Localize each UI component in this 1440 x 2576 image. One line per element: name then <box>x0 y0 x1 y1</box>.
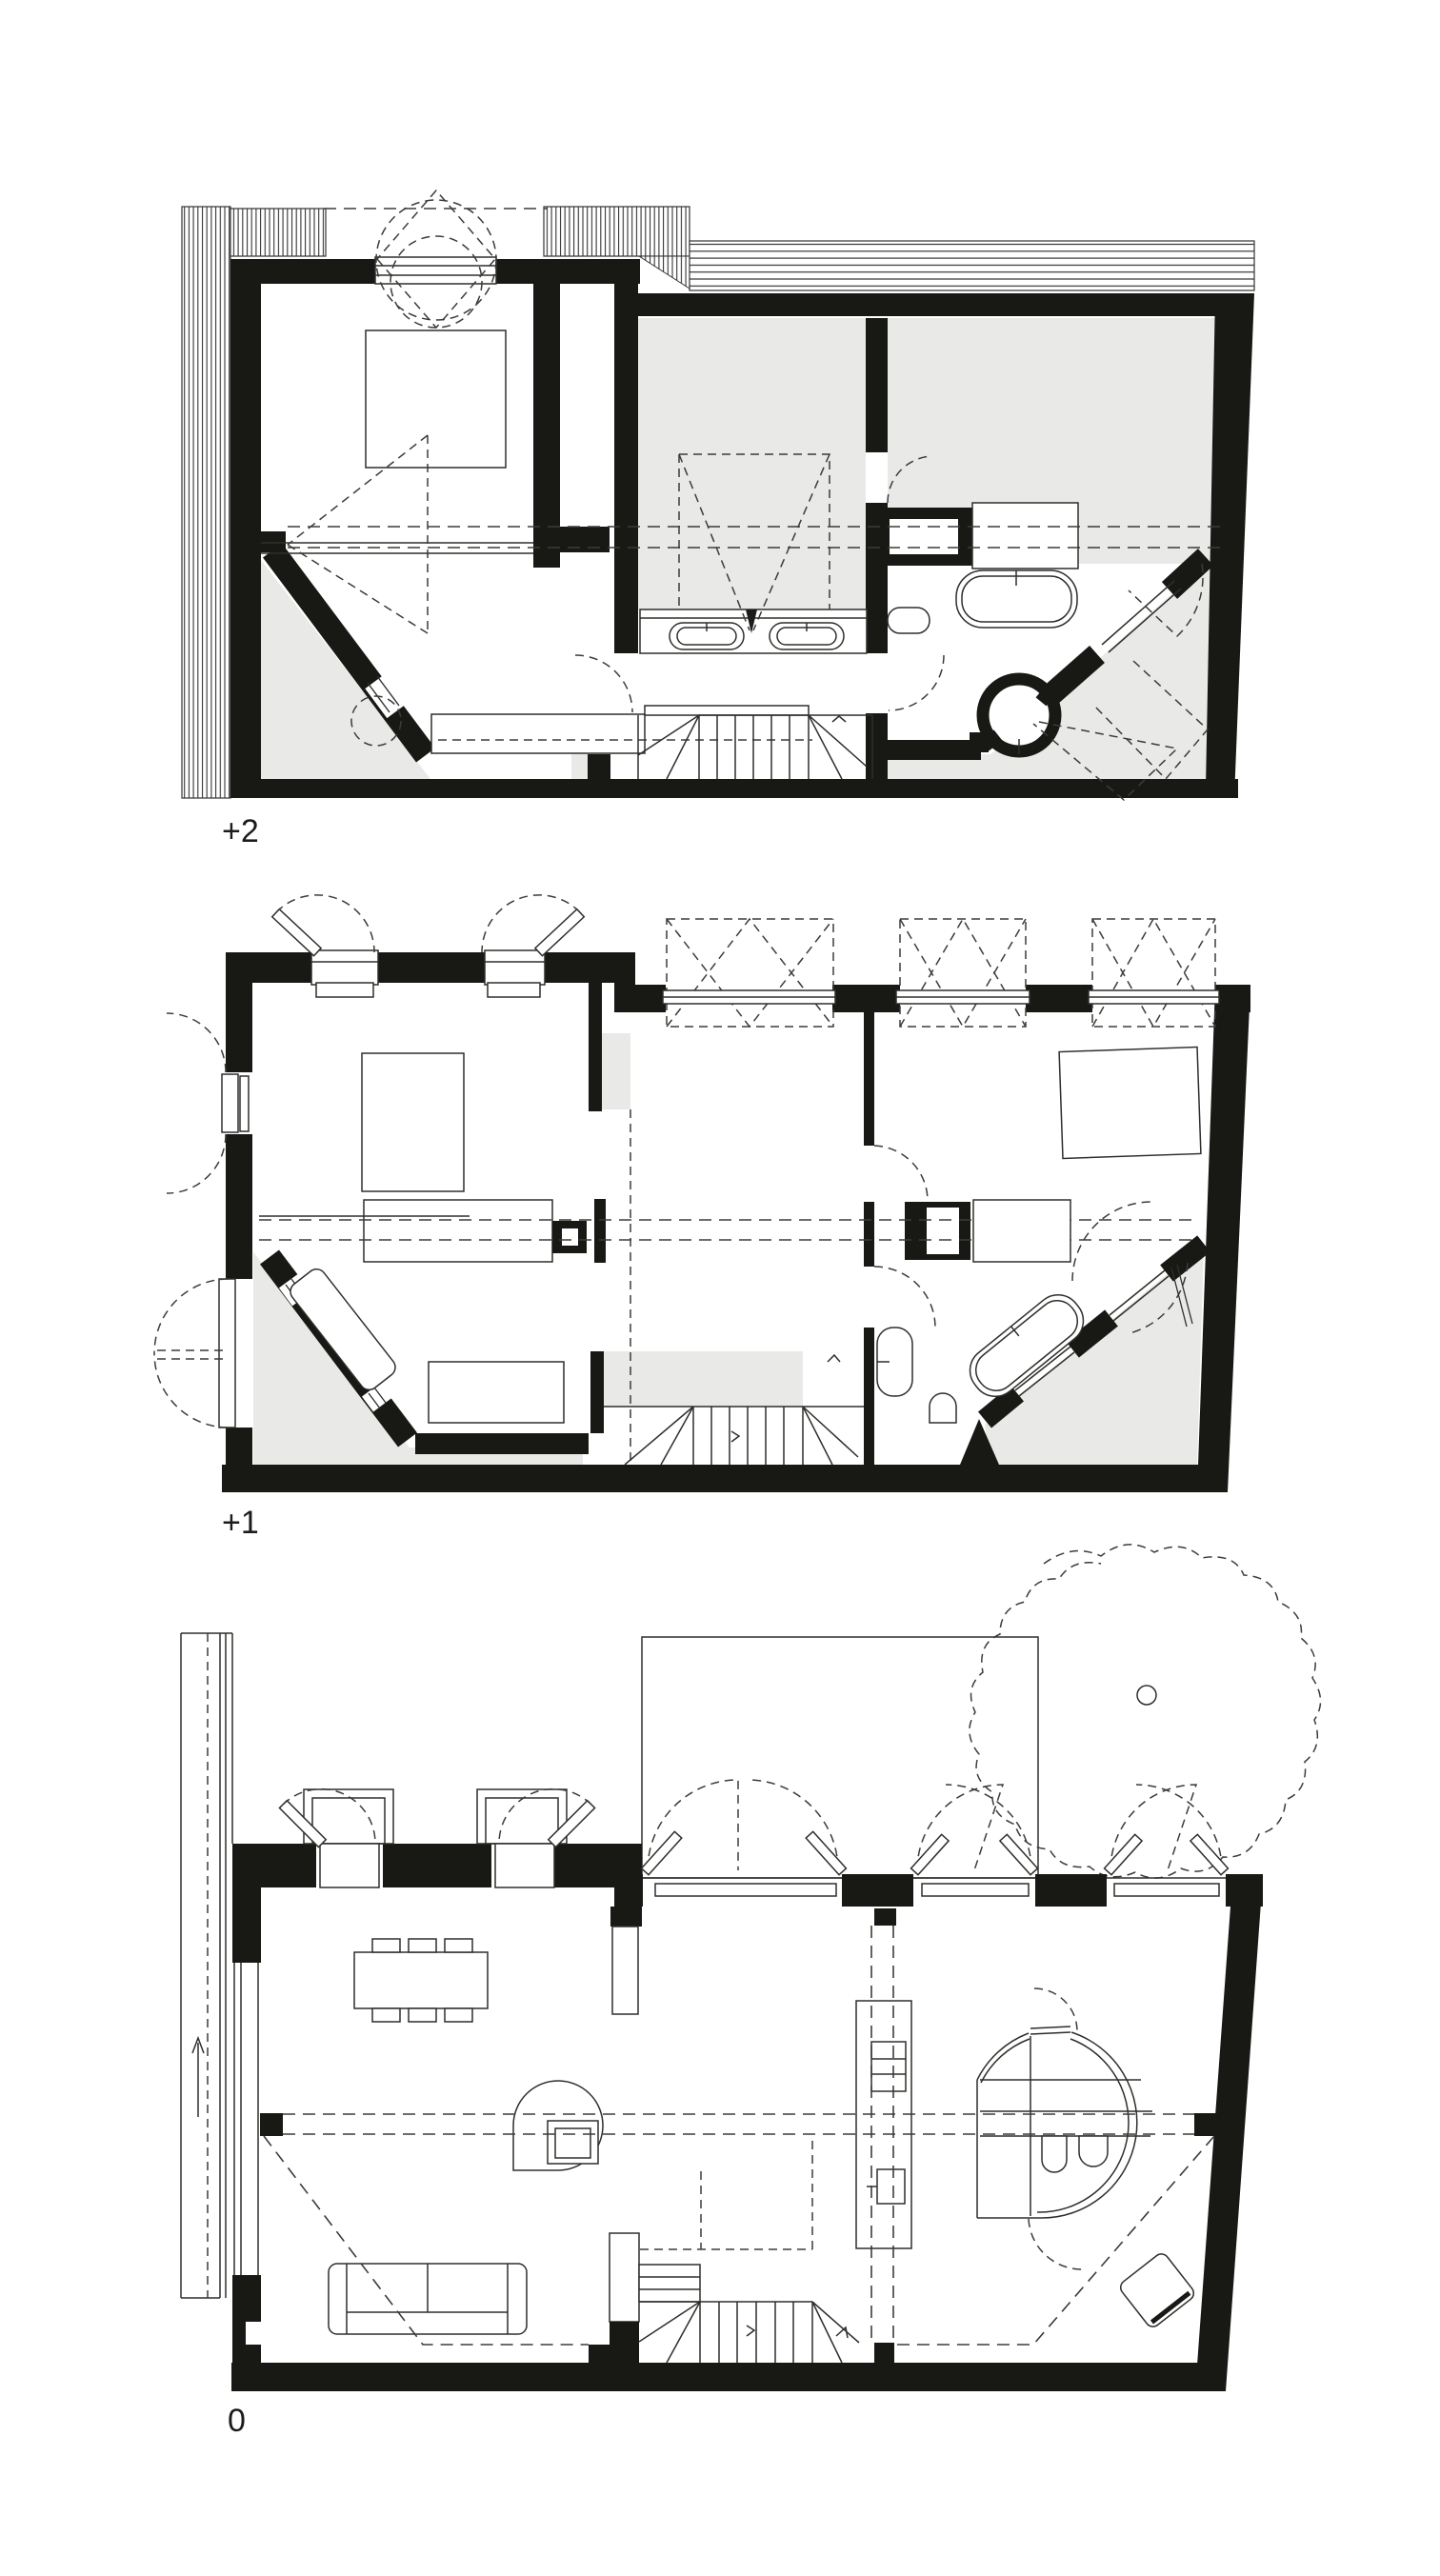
svg-text:+1: +1 <box>222 1505 259 1541</box>
svg-text:0: 0 <box>228 2403 246 2439</box>
svg-text:+2: +2 <box>222 813 259 849</box>
